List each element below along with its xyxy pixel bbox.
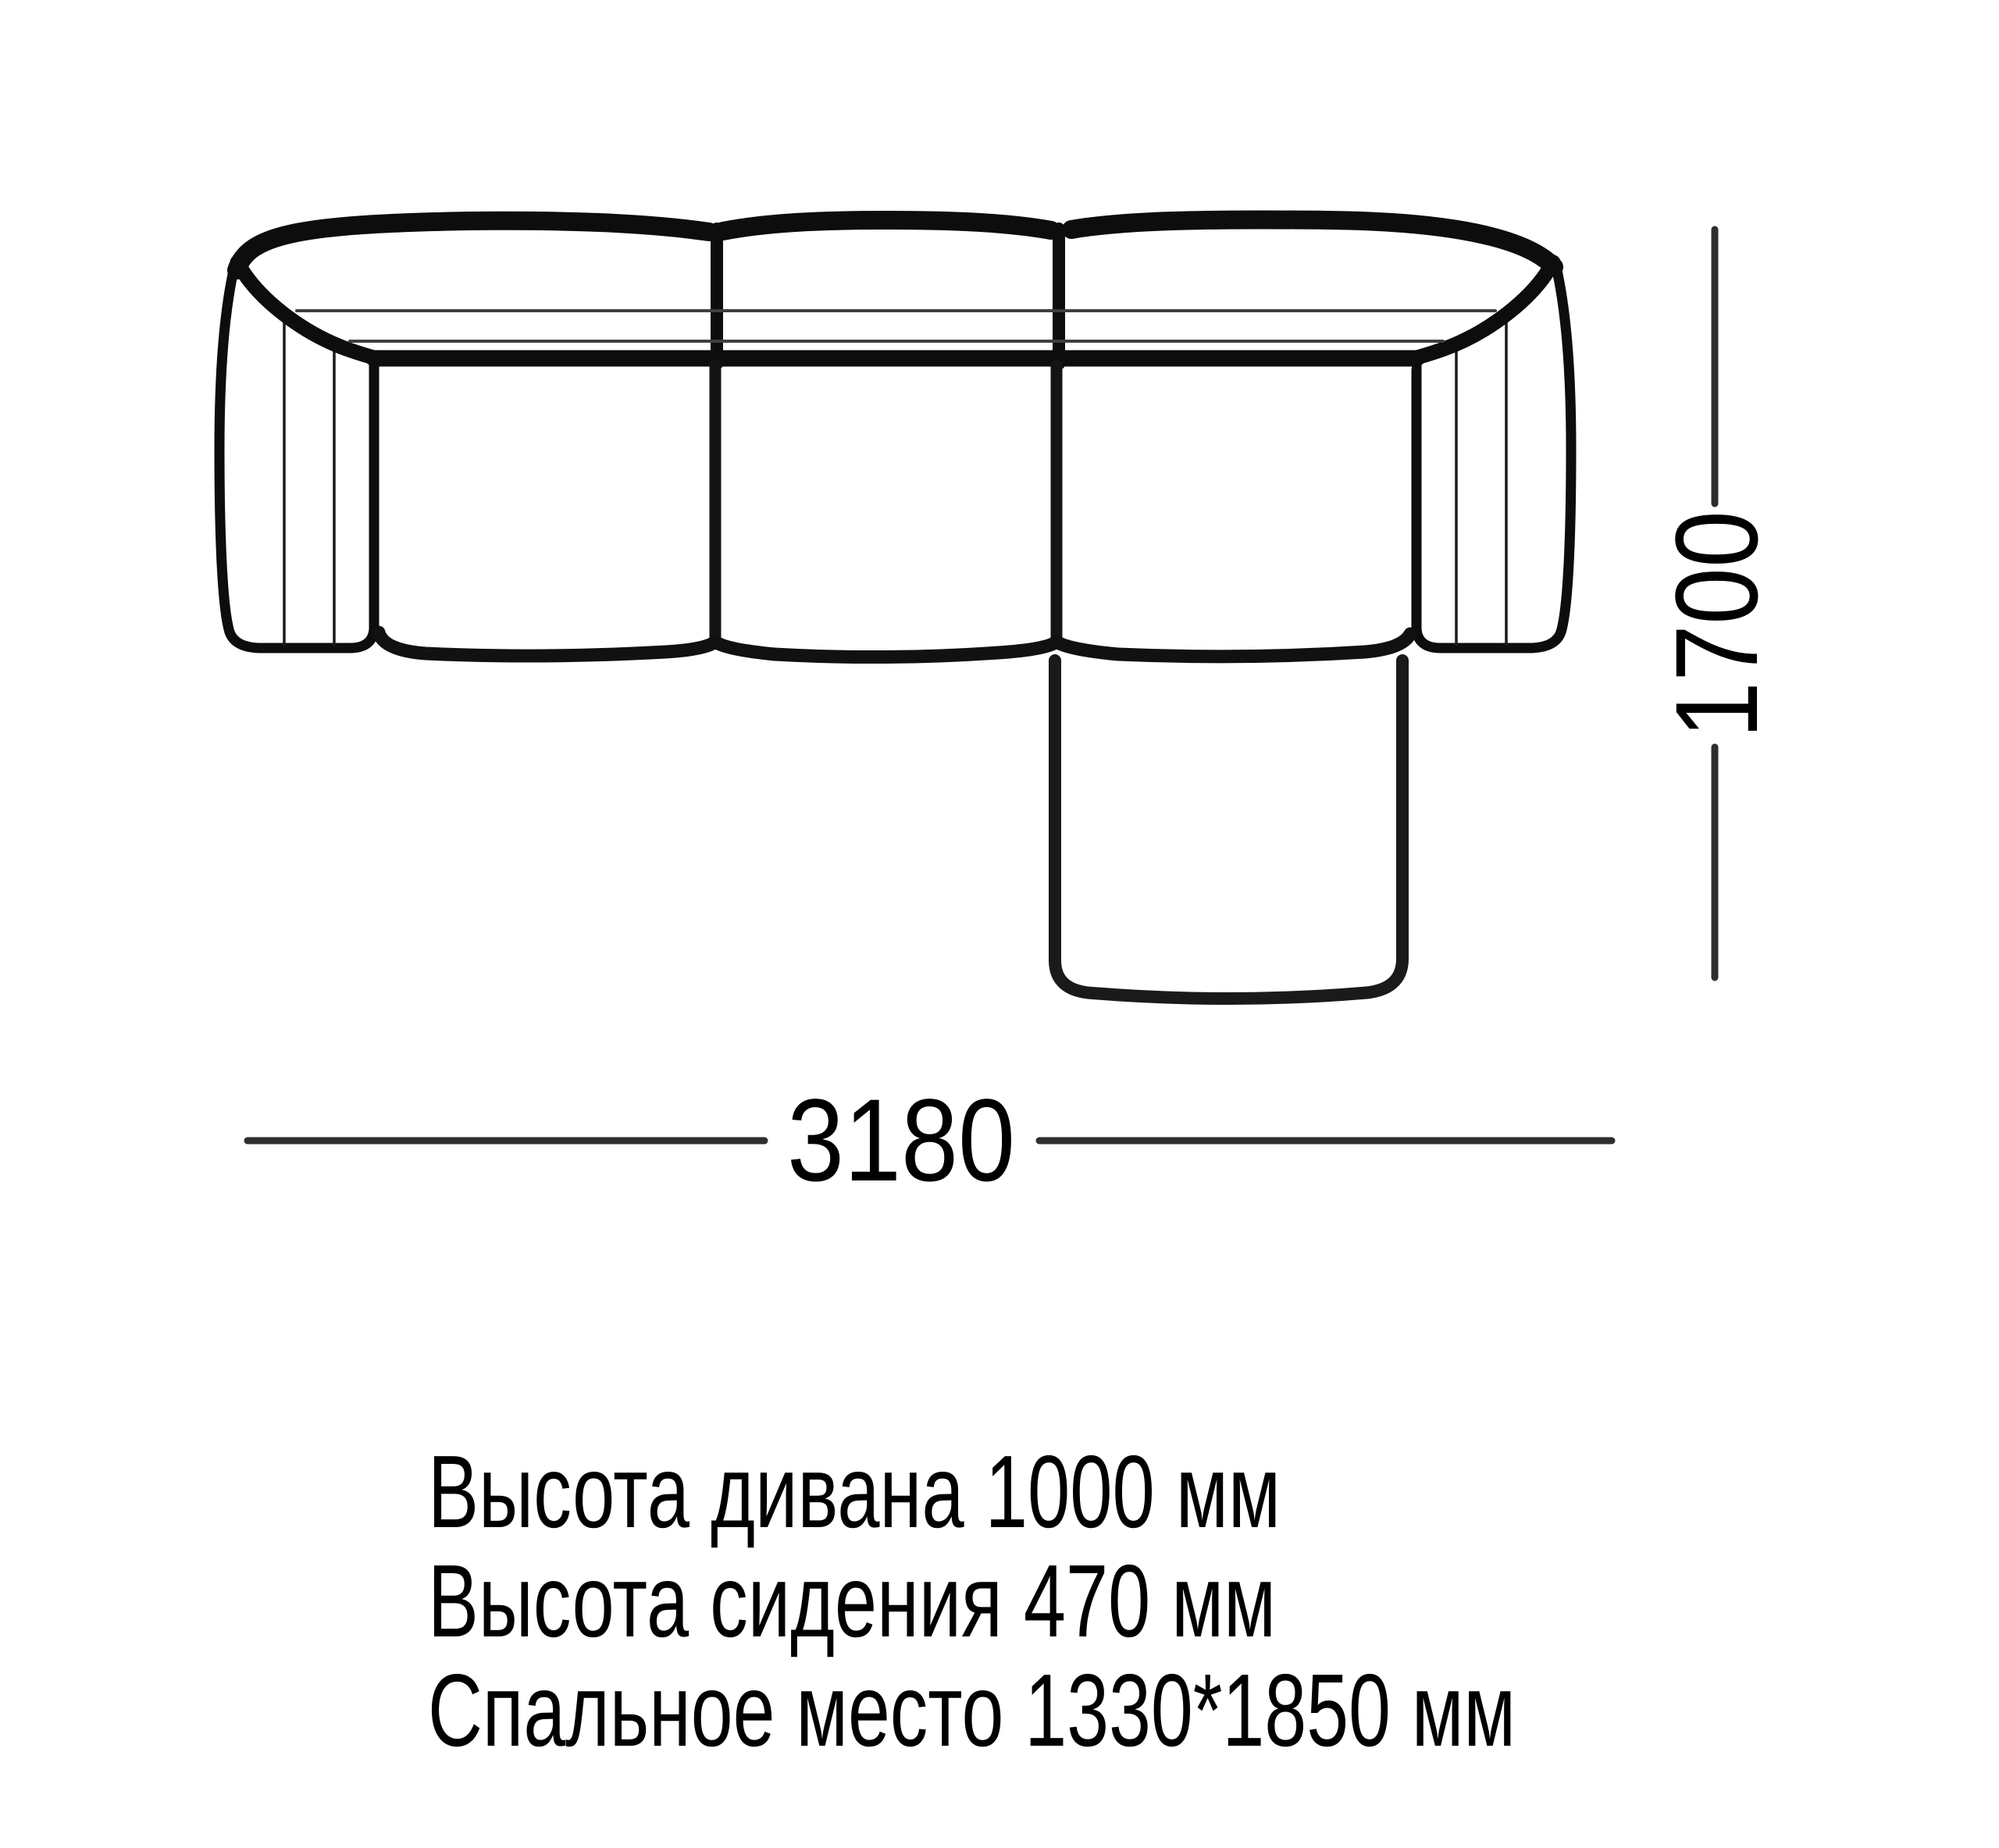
spec-line-sleeping-area: Спальное место 1330*1850 мм: [428, 1653, 1516, 1768]
sofa-dimension-diagram: 3180 1700 Высота дивана 1000 мм Высота с…: [0, 0, 1999, 1848]
diagram-canvas: 3180 1700 Высота дивана 1000 мм Высота с…: [0, 0, 1999, 1848]
depth-dimension-label: 1700: [1651, 511, 1782, 739]
backrest-fill: [236, 219, 1555, 369]
backrest: [236, 219, 1555, 369]
width-dimension-label: 3180: [787, 1074, 1015, 1205]
back-cushion-middle-top: [723, 220, 1051, 231]
spec-line-sofa-height: Высота дивана 1000 мм: [428, 1434, 1281, 1549]
spec-line-seat-height: Высота сидения 470 мм: [428, 1544, 1276, 1658]
